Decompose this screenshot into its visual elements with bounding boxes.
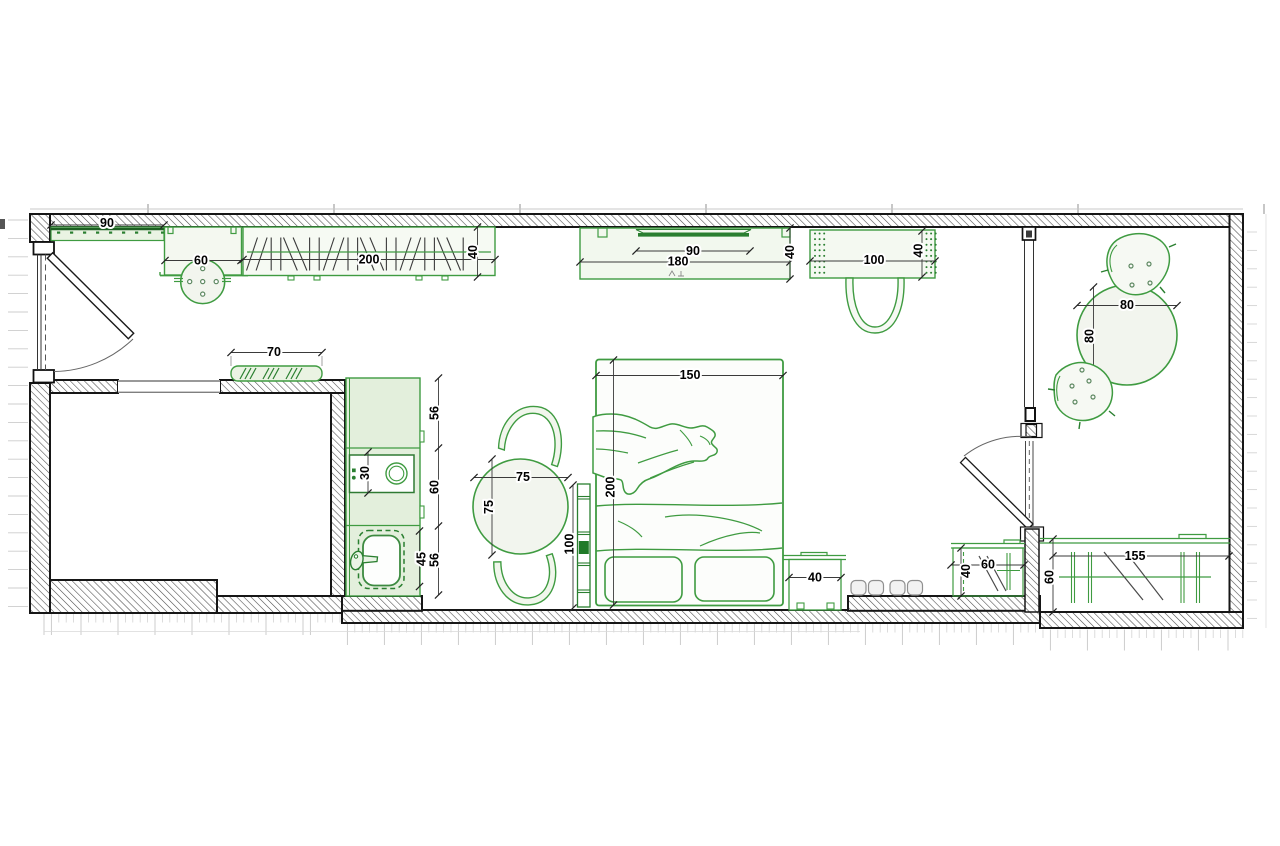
svg-text:56: 56 — [428, 406, 442, 420]
svg-text:56: 56 — [428, 553, 442, 567]
svg-text:60: 60 — [194, 254, 208, 268]
svg-text:30: 30 — [358, 466, 372, 480]
svg-text:90: 90 — [100, 216, 114, 230]
svg-text:40: 40 — [808, 571, 822, 585]
svg-text:80: 80 — [1083, 329, 1097, 343]
svg-text:60: 60 — [1043, 570, 1057, 584]
svg-text:60: 60 — [981, 558, 995, 572]
svg-text:150: 150 — [680, 368, 701, 382]
svg-text:100: 100 — [563, 534, 577, 555]
svg-text:40: 40 — [466, 245, 480, 259]
svg-text:155: 155 — [1125, 549, 1146, 563]
svg-text:45: 45 — [415, 552, 429, 566]
svg-text:180: 180 — [668, 255, 689, 269]
svg-text:60: 60 — [428, 480, 442, 494]
svg-text:200: 200 — [359, 253, 380, 267]
svg-text:80: 80 — [1120, 298, 1134, 312]
svg-text:75: 75 — [482, 500, 496, 514]
svg-text:70: 70 — [267, 345, 281, 359]
svg-text:40: 40 — [912, 244, 926, 258]
svg-text:40: 40 — [783, 245, 797, 259]
svg-text:100: 100 — [864, 253, 885, 267]
svg-text:40: 40 — [959, 564, 973, 578]
svg-text:200: 200 — [604, 477, 618, 498]
svg-text:75: 75 — [516, 470, 530, 484]
